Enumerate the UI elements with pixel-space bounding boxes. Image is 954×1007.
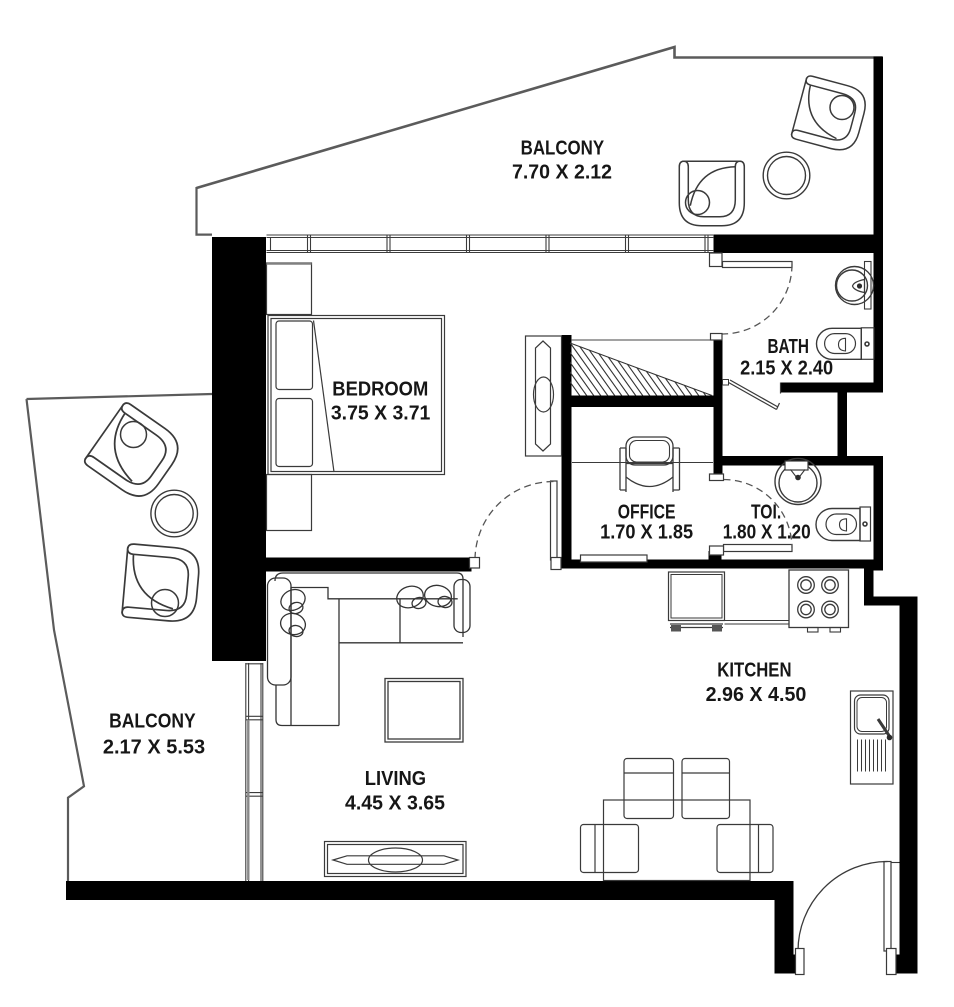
svg-text:LIVING: LIVING bbox=[365, 768, 426, 790]
svg-text:2.96 X 4.50: 2.96 X 4.50 bbox=[706, 684, 807, 706]
svg-text:2.15 X 2.40: 2.15 X 2.40 bbox=[740, 358, 833, 380]
svg-text:4.45 X 3.65: 4.45 X 3.65 bbox=[345, 793, 445, 815]
svg-text:1.70 X 1.85: 1.70 X 1.85 bbox=[600, 522, 693, 544]
svg-text:OFFICE: OFFICE bbox=[618, 502, 676, 524]
svg-text:BEDROOM: BEDROOM bbox=[332, 379, 428, 401]
svg-text:TOI.: TOI. bbox=[751, 502, 781, 524]
svg-text:BALCONY: BALCONY bbox=[109, 711, 196, 733]
svg-text:BATH: BATH bbox=[767, 336, 809, 358]
svg-text:7.70 X 2.12: 7.70 X 2.12 bbox=[512, 162, 612, 184]
svg-text:BALCONY: BALCONY bbox=[521, 138, 605, 160]
svg-text:3.75 X 3.71: 3.75 X 3.71 bbox=[331, 403, 431, 425]
svg-text:2.17 X 5.53: 2.17 X 5.53 bbox=[103, 737, 205, 759]
svg-text:1.80 X 1.20: 1.80 X 1.20 bbox=[723, 522, 811, 544]
svg-text:KITCHEN: KITCHEN bbox=[717, 660, 791, 682]
